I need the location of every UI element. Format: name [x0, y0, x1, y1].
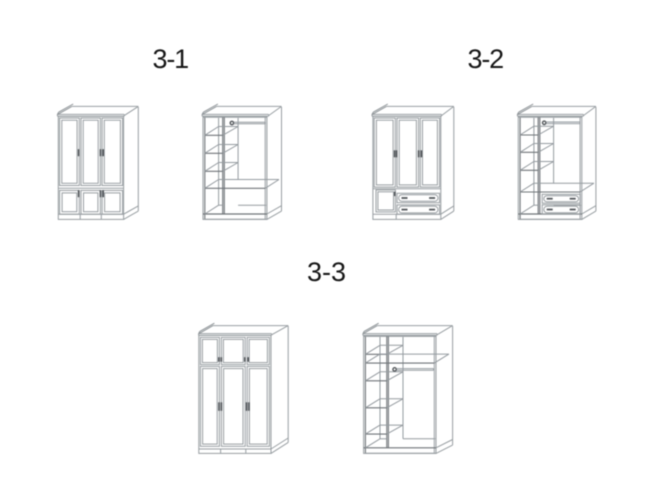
svg-text:3-1: 3-1 [153, 44, 189, 74]
svg-text:3-3: 3-3 [307, 257, 346, 287]
svg-text:3-2: 3-2 [468, 44, 504, 74]
